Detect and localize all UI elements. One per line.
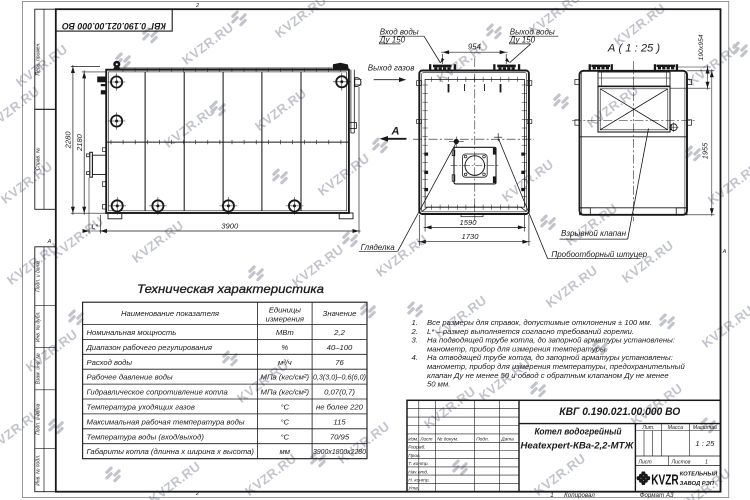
svg-text:Максимальная рабочая температу: Максимальная рабочая температура воды bbox=[87, 417, 245, 426]
svg-text:1590: 1590 bbox=[460, 218, 478, 227]
svg-text:KVZR.RU: KVZR.RU bbox=[543, 262, 600, 310]
svg-text:Нач.отд.: Нач.отд. bbox=[408, 469, 428, 475]
svg-text:3900: 3900 bbox=[221, 221, 239, 230]
svg-text:Все размеры для справок, допус: Все размеры для справок, допустимые откл… bbox=[427, 318, 652, 327]
svg-text:KVZR.RU: KVZR.RU bbox=[272, 0, 329, 41]
svg-text:Значение: Значение bbox=[323, 309, 357, 318]
svg-text:1955: 1955 bbox=[701, 142, 710, 159]
svg-text:Перв. примен.: Перв. примен. bbox=[36, 42, 42, 75]
svg-text:Heatexpert-КВа-2,2-МТЖ: Heatexpert-КВа-2,2-МТЖ bbox=[521, 439, 635, 450]
svg-text:40–100: 40–100 bbox=[327, 343, 353, 352]
svg-text:1: 1 bbox=[705, 459, 708, 465]
svg-text:Взам. инв. №: Взам. инв. № bbox=[36, 353, 42, 385]
svg-text:KVZR.RU: KVZR.RU bbox=[49, 213, 106, 261]
svg-text:3900х1800х2280: 3900х1800х2280 bbox=[313, 447, 367, 456]
svg-text:Пробоотборный штуцер: Пробоотборный штуцер bbox=[551, 250, 647, 259]
svg-text:KVZR.RU: KVZR.RU bbox=[0, 83, 42, 131]
svg-text:Масштаб: Масштаб bbox=[693, 425, 718, 431]
svg-text:Справ. №: Справ. № bbox=[36, 147, 42, 170]
svg-text:№ докум.: № докум. bbox=[437, 436, 458, 442]
svg-text:Инв. № дубл.: Инв. № дубл. bbox=[36, 311, 42, 342]
svg-text:Лист: Лист bbox=[637, 459, 652, 465]
svg-text:0,3(3,0)–0,6(6,0): 0,3(3,0)–0,6(6,0) bbox=[313, 373, 366, 382]
svg-text:Температура воды (вход/выход): Температура воды (вход/выход) bbox=[87, 432, 205, 441]
svg-text:KVZR.RU: KVZR.RU bbox=[23, 326, 80, 374]
svg-text:L*: L* bbox=[92, 223, 99, 230]
svg-text:Рабочее давление воды: Рабочее давление воды bbox=[87, 373, 173, 382]
svg-text:KVZR.RU: KVZR.RU bbox=[129, 217, 186, 265]
svg-text:Лист: Лист bbox=[419, 436, 432, 442]
svg-text:Инв. № подл.: Инв. № подл. bbox=[36, 455, 42, 486]
svg-text:Габариты котла (длинна х ширин: Габариты котла (длинна х ширина х высота… bbox=[87, 447, 255, 456]
svg-text:Пров.: Пров. bbox=[408, 453, 421, 459]
svg-text:Формат А3: Формат А3 bbox=[640, 492, 674, 499]
svg-text:Котел водогрейный: Котел водогрейный bbox=[535, 426, 622, 437]
svg-text:м³/ч: м³/ч bbox=[278, 358, 292, 367]
svg-text:А: А bbox=[47, 239, 52, 245]
svg-text:Подп.: Подп. bbox=[476, 436, 489, 442]
svg-text:Подп. и дата: Подп. и дата bbox=[36, 260, 42, 292]
svg-text:На подводящей трубе котла, до: На подводящей трубе котла, до запорной а… bbox=[427, 336, 675, 345]
svg-text:Температура уходящих газов: Температура уходящих газов bbox=[87, 403, 195, 412]
svg-text:А: А bbox=[391, 126, 400, 138]
svg-text:KVZR: KVZR bbox=[651, 473, 679, 489]
svg-text:МВт: МВт bbox=[276, 328, 295, 337]
svg-text:3.: 3. bbox=[412, 336, 418, 345]
svg-text:Н. контр.: Н. контр. bbox=[408, 478, 430, 484]
svg-text:МПа (кгс/см²): МПа (кгс/см²) bbox=[261, 373, 310, 382]
svg-text:МПа (кгс/см²): МПа (кгс/см²) bbox=[261, 388, 310, 397]
svg-text:KVZR.RU: KVZR.RU bbox=[421, 383, 478, 431]
svg-text:0,07(0,7): 0,07(0,7) bbox=[324, 388, 355, 397]
svg-text:ЗАВОД РЭП: ЗАВОД РЭП bbox=[680, 481, 715, 487]
svg-text:Изм.: Изм. bbox=[408, 436, 418, 442]
svg-text:А ( 1 : 25 ): А ( 1 : 25 ) bbox=[607, 43, 661, 55]
svg-text:KVZR.RU: KVZR.RU bbox=[179, 19, 236, 67]
svg-text:KVZR.RU: KVZR.RU bbox=[584, 82, 641, 130]
svg-text:Взрывной клапан: Взрывной клапан bbox=[561, 229, 627, 238]
svg-text:KVZR.RU: KVZR.RU bbox=[161, 102, 218, 150]
svg-text:190х954: 190х954 bbox=[698, 34, 705, 60]
svg-text:манометр, прибор для измерения: манометр, прибор для измерения температу… bbox=[427, 362, 685, 371]
svg-text:Масса: Масса bbox=[668, 425, 683, 431]
svg-text:L* – размер выполняется соглас: L* – размер выполняется согласно требова… bbox=[427, 327, 634, 336]
svg-text:70/95: 70/95 bbox=[330, 432, 350, 441]
svg-text:Техническая характеристика: Техническая характеристика bbox=[137, 282, 324, 296]
svg-text:KVZR.RU: KVZR.RU bbox=[373, 231, 430, 279]
svg-text:На отводящей трубе котла, до з: На отводящей трубе котла, до запорной ар… bbox=[427, 353, 673, 362]
svg-text:Ду 150: Ду 150 bbox=[379, 35, 406, 44]
svg-text:°С: °С bbox=[280, 417, 289, 426]
svg-text:Подп. и дата: Подп. и дата bbox=[36, 403, 42, 435]
svg-text:1730: 1730 bbox=[462, 232, 480, 241]
svg-text:954: 954 bbox=[468, 43, 482, 52]
svg-text:Гляделка: Гляделка bbox=[361, 243, 396, 252]
svg-text:А: А bbox=[722, 249, 727, 255]
svg-text:КОТЕЛЬНЫЙ: КОТЕЛЬНЫЙ bbox=[680, 469, 719, 477]
svg-text:Разраб.: Разраб. bbox=[408, 445, 425, 451]
svg-text:Выход газов: Выход газов bbox=[368, 63, 415, 72]
svg-text:KVZR.RU: KVZR.RU bbox=[0, 158, 55, 206]
svg-text:1.: 1. bbox=[412, 318, 418, 327]
svg-text:Ду 150: Ду 150 bbox=[509, 35, 536, 44]
svg-text:KVZR.RU: KVZR.RU bbox=[699, 302, 750, 350]
svg-text:Т. контр.: Т. контр. bbox=[408, 461, 429, 467]
svg-text:КВГ 0.190.021.00.000 ВО: КВГ 0.190.021.00.000 ВО bbox=[559, 406, 680, 418]
svg-text:115: 115 bbox=[333, 417, 346, 426]
svg-text:КВГ 0.190.021.00.000 ВО: КВГ 0.190.021.00.000 ВО bbox=[61, 20, 166, 31]
svg-text:°С: °С bbox=[280, 432, 289, 441]
svg-text:Единицы: Единицы bbox=[269, 305, 302, 314]
svg-text:Наименование показателя: Наименование показателя bbox=[121, 309, 219, 318]
svg-text:Копировал: Копировал bbox=[564, 492, 595, 499]
svg-text:Лит.: Лит. bbox=[641, 425, 654, 431]
svg-text:76: 76 bbox=[335, 358, 344, 367]
svg-text:KVZR.RU: KVZR.RU bbox=[499, 156, 556, 204]
svg-text:2,2: 2,2 bbox=[333, 328, 345, 337]
svg-text:клапан Ду не менее 50 и обвод: клапан Ду не менее 50 и обвод с обратным… bbox=[427, 371, 669, 380]
svg-text:не более 220: не более 220 bbox=[316, 403, 364, 412]
svg-text:KVZR.RU: KVZR.RU bbox=[146, 458, 203, 500]
svg-text:%: % bbox=[281, 343, 288, 352]
svg-text:Гидравлическое сопротивление к: Гидравлическое сопротивление котла bbox=[87, 388, 229, 397]
svg-text:KVZR.RU: KVZR.RU bbox=[315, 150, 372, 198]
svg-text:2280: 2280 bbox=[64, 131, 73, 150]
svg-text:1 : 25: 1 : 25 bbox=[695, 439, 715, 448]
svg-text:Дата: Дата bbox=[500, 436, 514, 442]
svg-text:2: 2 bbox=[195, 491, 199, 497]
svg-text:измерения: измерения bbox=[266, 314, 304, 323]
svg-text:°С: °С bbox=[280, 403, 289, 412]
svg-text:KVZR.RU: KVZR.RU bbox=[13, 41, 70, 89]
svg-text:мм: мм bbox=[280, 447, 291, 456]
svg-text:4.: 4. bbox=[412, 353, 418, 362]
svg-text:2180: 2180 bbox=[75, 133, 84, 152]
svg-text:KVZR.RU: KVZR.RU bbox=[619, 237, 676, 285]
svg-text:Листов: Листов bbox=[671, 459, 691, 465]
svg-text:Расход воды: Расход воды bbox=[87, 358, 133, 367]
svg-text:2.: 2. bbox=[411, 327, 418, 336]
svg-text:манометр, прибор для измерения: манометр, прибор для измерения температу… bbox=[427, 344, 608, 353]
svg-text:Номинальная мощность: Номинальная мощность bbox=[87, 328, 177, 337]
svg-text:Утв.: Утв. bbox=[408, 486, 419, 492]
svg-text:KVZR.RU: KVZR.RU bbox=[628, 380, 685, 428]
svg-text:1: 1 bbox=[550, 492, 553, 499]
svg-text:50 мм.: 50 мм. bbox=[427, 380, 450, 389]
svg-text:2: 2 bbox=[195, 3, 199, 9]
svg-text:Диапазон рабочего регулировани: Диапазон рабочего регулирования bbox=[86, 343, 213, 352]
